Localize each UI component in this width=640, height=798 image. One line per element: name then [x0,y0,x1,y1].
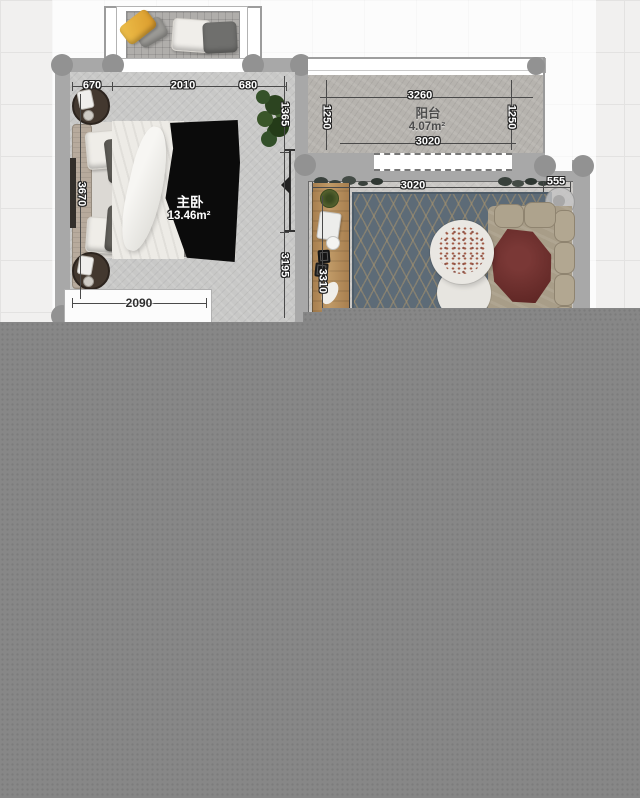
sofa-arm-cushion [524,202,556,228]
dim-bedroom-top-left: 670 [83,81,101,92]
dimension-tick [72,82,73,91]
bedroom-name-label: 主卧 [177,191,204,211]
balcony-sliding-door[interactable] [374,153,512,171]
dimension-tick [280,152,289,153]
dim-living-left: 3310 [317,269,328,293]
dimension-line [312,187,570,188]
floorplan-viewport: 2090 670 2010 680 3670 1365 3195 主卧 13.4… [0,0,640,798]
balcony-window-mullion [308,70,545,71]
sofa-back-cushion [554,210,575,242]
dimension-tick [280,232,289,233]
wall-bedroom-living-shared[interactable] [295,58,308,322]
dimension-line [322,196,323,322]
dim-bedroom-right-lower: 3195 [279,253,290,277]
sliding-door-tick [285,149,295,151]
wall-bedroom-left[interactable] [55,58,70,322]
dimension-tick [543,182,544,192]
dimension-tick [286,82,287,91]
dim-bedroom-left: 3670 [76,182,87,206]
dimension-tick [206,298,207,308]
balcony-name-label: 阳台 [415,103,440,122]
nightstand-knob-icon [83,110,94,121]
wall-joint-dot [572,155,594,177]
dim-balcony-top: 3260 [408,91,432,102]
curtain-icon [498,177,512,186]
dim-balcony-right: 1250 [506,105,517,129]
wall-joint-dot [527,57,545,75]
nightstand-knob-icon [83,276,94,287]
wall-balcony-right-line [543,57,545,160]
pillow-dark-gray[interactable] [202,21,238,54]
dimension-tick [72,298,73,308]
balcony-area-label: 4.07m² [409,121,445,133]
sofa-back-cushion [554,274,575,306]
projector-lens-icon [326,236,340,250]
dimension-tick [112,82,113,91]
potted-plant[interactable] [256,90,270,104]
bottom-overlay-main [0,322,640,798]
dim-bedroom-top-center: 2010 [171,81,195,92]
sofa-back-cushion [554,242,575,274]
dim-bedroom-top-right: 680 [239,81,257,92]
dim-living-top: 3020 [401,181,425,192]
dimension-tick [312,182,313,192]
wall-joint-dot [534,155,556,177]
dim-bedroom-bottom: 2090 [126,297,153,309]
dim-living-right: 555 [547,177,565,188]
bedroom-area-label: 13.46m² [168,210,211,222]
wall-joint-dot [294,154,316,176]
dim-bedroom-right-upper: 1365 [279,102,290,126]
dim-balcony-left: 1250 [321,105,332,129]
wall-balcony-bottom-left[interactable] [308,153,374,171]
sofa-arm-cushion [494,204,524,228]
dim-balcony-bottom: 3020 [416,137,440,148]
dimension-tick [570,182,571,192]
table-flowers-icon [438,226,486,274]
remote-control-icon [318,250,331,264]
